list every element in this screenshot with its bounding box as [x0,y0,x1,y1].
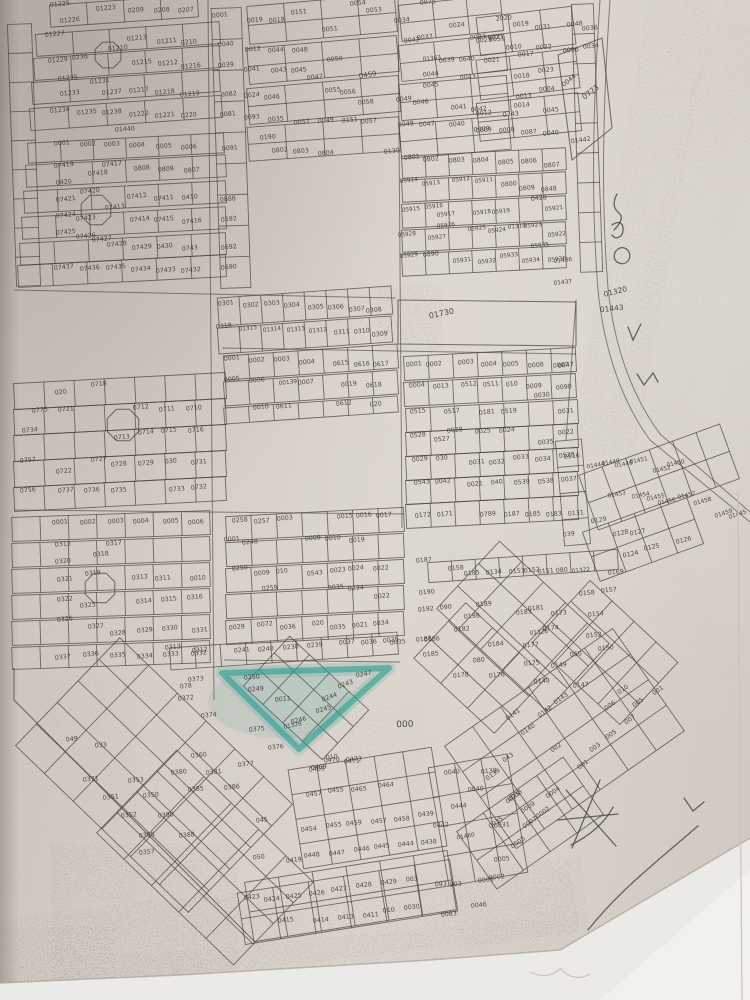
parcel-label: 020 [54,388,67,396]
toner-smudge [0,690,130,890]
parcel-label: 080 [555,566,568,574]
parcel-label: 050 [569,650,582,658]
parcel-label: 080 [472,656,485,664]
parcel-label: 003 [405,875,418,883]
cadastral-map-svg: 0122501223020902080207012260001012270121… [0,0,750,1000]
parcel-label: 010 [275,567,288,575]
parcel-label: 093 [434,880,447,888]
parcel-label: 010 [505,380,518,388]
parcel-label: 030 [435,454,448,462]
parcel-label: 033 [94,741,107,749]
parcel-label: 000 [396,720,414,731]
parcel-label: 049 [65,735,78,743]
parcel-label: 010 [382,906,395,914]
parcel-label: 020 [311,619,324,627]
parcel-label: 090 [439,603,452,611]
parcel-label: 903 [449,880,462,888]
parcel-label: 01440 [115,125,135,133]
parcel-label: 078 [179,682,192,690]
parcel-label: 039 [562,530,575,538]
parcel-label: 020 [369,400,382,408]
photo-of-paper-map: 0122501223020902080207012260001012270121… [0,0,750,1000]
parcel-label: 045 [255,816,268,824]
parcel-label: 040 [490,478,503,486]
parcel-label: 050 [252,853,265,861]
parcel-label: 030 [164,457,177,465]
